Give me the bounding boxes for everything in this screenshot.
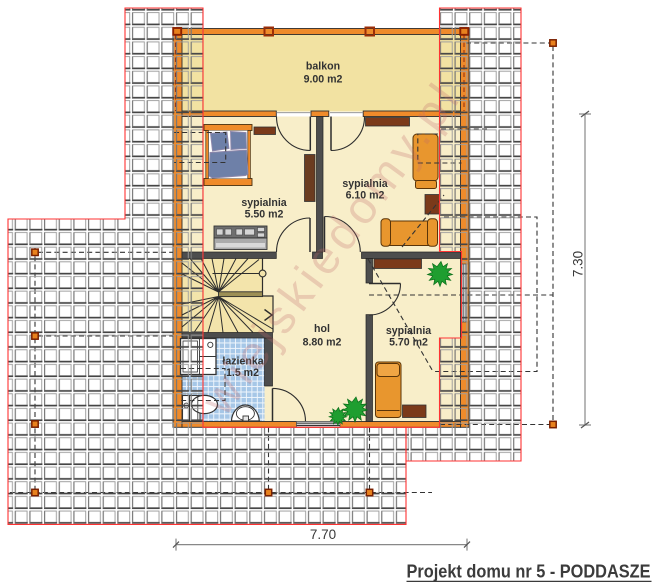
svg-text:7.70: 7.70 <box>310 527 336 542</box>
svg-text:Projekt domu nr 5 - PODDASZE: Projekt domu nr 5 - PODDASZE <box>407 562 651 582</box>
svg-text:8.80 m2: 8.80 m2 <box>303 337 342 349</box>
svg-text:5.70 m2: 5.70 m2 <box>389 337 428 349</box>
svg-text:sypialnia: sypialnia <box>386 325 431 337</box>
svg-text:7.30: 7.30 <box>571 251 586 277</box>
svg-text:9.00 m2: 9.00 m2 <box>304 74 343 86</box>
svg-text:sypialnia: sypialnia <box>241 197 286 209</box>
svg-text:balkon: balkon <box>306 61 340 73</box>
svg-text:hol: hol <box>314 323 330 335</box>
svg-text:5.50 m2: 5.50 m2 <box>245 209 284 221</box>
